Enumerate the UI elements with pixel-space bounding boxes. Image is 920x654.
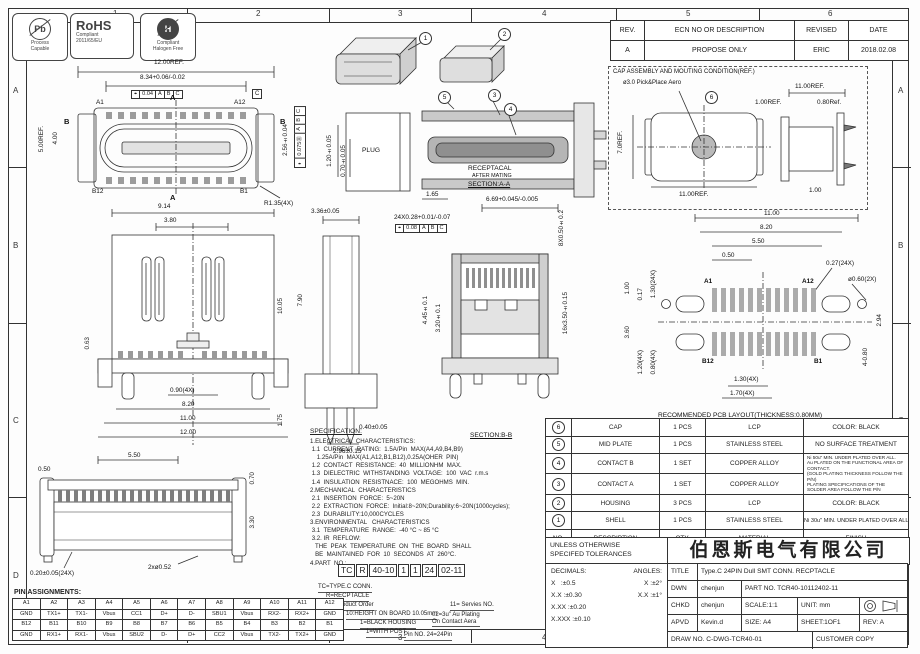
cell: C (437, 224, 447, 233)
bom-item-number: 2 (552, 497, 565, 510)
dimension-label: 8.20 (182, 401, 194, 408)
pn-label-series: 11= Servies NO. (450, 602, 494, 611)
cap-line-art (609, 67, 867, 209)
cell: 1 (410, 564, 421, 577)
dimension-label: 5.50 (752, 238, 764, 245)
customer-copy: CUSTOMER COPY (813, 632, 907, 649)
pad-label: B1 (814, 358, 822, 365)
pick-place-label: ø3.0 Pick&Place Aero (623, 80, 681, 87)
pn-label-height: 10:HEIGHT ON BOARD 10.05mm (346, 611, 437, 620)
table-cell: A1 (13, 599, 41, 610)
text-line: 1.2 CONTACT RESISTANCE: 40 MILLIONHM MAX… (310, 462, 548, 470)
section-arrow-a: A (170, 194, 175, 201)
cell: 0.075Ⓜ (294, 133, 306, 159)
angles-label: ANGLES: (633, 566, 662, 578)
dimension-label: 1.20(4X) (637, 350, 644, 375)
dimension-label: 12.00 (180, 429, 196, 436)
bom-material: COPPER ALLOY (706, 454, 804, 474)
zone-row: C (13, 416, 19, 425)
cell: 40-10 (369, 564, 397, 577)
table-row: A1A2A3A4A5A6A7A8A9A10A11A12 (13, 599, 344, 610)
table-cell: RX1+ (40, 630, 68, 641)
dimension-label: 0.70 (249, 472, 256, 484)
dimension-label: 0.80(4X) (650, 350, 657, 375)
table-cell: A11 (288, 599, 316, 610)
table-row: B12B11B10B9B8B7B6B5B4B3B2B1 (13, 620, 344, 631)
revision-header-row: REV. ECN NO OR DESCRIPTION REVISED DATE (611, 21, 909, 41)
rohs-directive: 2011/65/EU (76, 39, 133, 45)
zone-col: 5 (686, 9, 690, 18)
unless-otherwise-note: UNLESS OTHERWISE SPECIFED TOLERANCES (546, 538, 668, 564)
scale-value: SCALE:1:1 (742, 598, 798, 614)
pad-label: A12 (802, 278, 814, 285)
tol-key: X.X (638, 592, 649, 599)
dimension-label: ø0.60(2X) (848, 276, 876, 283)
table-cell: RX1- (68, 630, 96, 641)
table-cell: B8 (123, 620, 151, 631)
dimension-label: 0.63 (84, 337, 91, 349)
bom-qty: 1 PCS (660, 436, 706, 454)
dimension-label: 0.80Ref. (817, 99, 841, 106)
bom-description: SHELL (572, 512, 660, 530)
rev-header: REV. (611, 21, 645, 41)
tol-value: :±0.20 (568, 604, 586, 611)
table-cell: TX1+ (40, 609, 68, 620)
pin-label: B12 (92, 188, 103, 195)
side-line-art (275, 208, 405, 456)
text-line: 1.4 INSULATION RESISTNACE: 100 MEGOHMS M… (310, 479, 548, 487)
dimension-label: 4.45±0.1 (422, 296, 429, 324)
table-cell: SBU1 (206, 609, 234, 620)
unless-line1: UNLESS OTHERWISE (550, 541, 663, 550)
tol-value: :±0.30 (563, 592, 581, 599)
bom-item-number: 4 (552, 457, 565, 470)
cell: 0.04 (139, 90, 156, 99)
dimension-label: 3.30 (249, 516, 256, 528)
dimension-label: 1.70(4X) (730, 390, 755, 397)
tol-value: :±1° (650, 592, 662, 599)
dimension-label: 1.00 (809, 187, 821, 194)
bom-description: MID PLATE (572, 436, 660, 454)
table-cell: TX1- (68, 609, 96, 620)
table-cell: A8 (206, 599, 234, 610)
table-cell: GND (13, 609, 41, 620)
table-cell: SBU2 (123, 630, 151, 641)
bom-description: CONTACT B (572, 454, 660, 474)
pcb-line-art (600, 210, 902, 445)
bom-qty: 1 SET (660, 474, 706, 494)
dimension-label: 4.00 (52, 132, 59, 144)
text-line: 3.2. IR REFLOW: (310, 535, 548, 543)
zone-row: A (898, 86, 903, 95)
dimension-label: 0.50 (722, 252, 734, 259)
tolerance-block: DECIMALS: ANGLES: X :±0.5 X :±2° X.X :±0… (545, 563, 668, 648)
callout-5: 5 (438, 91, 451, 104)
dimension-label: 2.94 (876, 314, 883, 326)
bom-finish: Ni 30u" MIN. UNDER PLATED OVER ALL. (804, 512, 909, 530)
pn-label-housing: 1=BLACK HOUSING (360, 620, 416, 629)
dimension-label: 16x3.50±0.15 (562, 292, 569, 334)
zone-col: 4 (542, 9, 546, 18)
bom-qty: 1 PCS (660, 512, 706, 530)
front-line-art (50, 205, 300, 457)
halogen-icon: H (157, 18, 179, 40)
dimension-label: 5.50 (128, 452, 140, 459)
bom-row: 5 MID PLATE 1 PCS STAINLESS STEEL NO SUR… (546, 436, 909, 454)
cell: R (356, 564, 368, 577)
table-cell: B10 (68, 620, 96, 631)
bom-description: CAP (572, 419, 660, 437)
dimension-label: 3.80 (164, 217, 176, 224)
table-cell: 2018.02.08 (849, 41, 909, 61)
dimension-label: 3.36±0.05 (311, 208, 339, 215)
table-cell: B11 (40, 620, 68, 631)
halogen-free-text: Halogen Free (141, 47, 195, 53)
table-cell: B12 (13, 620, 41, 631)
section-aa-label: SECTION:A-A (468, 181, 510, 188)
bom-table: 6 CAP 1 PCS LCP COLOR: BLACK 5 MID PLATE… (545, 418, 909, 547)
cell: A (294, 124, 306, 134)
section-arrow-b: B (64, 118, 69, 125)
cell: ⌖ (294, 157, 306, 168)
rohs-logo: RoHS Compliant 2011/65/EU (70, 13, 134, 59)
tol-key: X (644, 580, 648, 587)
table-cell: D- (150, 630, 178, 641)
bom-material: LCP (706, 494, 804, 512)
table-cell: TX2- (261, 630, 289, 641)
view-pcb-layout: 11.00 8.20 5.50 0.50 0.27(24X) ø0.60(2X)… (600, 210, 902, 445)
zone-col: 2 (256, 9, 260, 18)
callout-3: 3 (488, 89, 501, 102)
view-section-bb: 6.69+0.045/-0.005 24X0.28+0.01/-0.07 ⌖0.… (390, 196, 580, 448)
pn-label-pins: Pin NO. 24=24Pin (404, 632, 452, 641)
table-cell: D- (178, 609, 206, 620)
specification-title: SPECIFICATION: (310, 428, 548, 436)
table-cell: A (611, 41, 645, 61)
chkd-name: chenjun (698, 598, 742, 614)
dimension-label: 1.00 (624, 282, 631, 294)
view-section-aa: 5 3 4 PLUG RECEPTACAL AFTER MATING SECTI… (330, 95, 610, 207)
table-row: GNDRX1+RX1-VbusSBU2D-D+CC2VbusTX2-TX2+GN… (13, 630, 344, 641)
dimension-label: 6.69+0.045/-0.005 (486, 196, 538, 203)
text-line: THE PEAK TEMPERATURE ON THE BOARD SHALL (310, 543, 548, 551)
feature-control-frame: ⌖0.08ABC (396, 224, 447, 233)
size-value: SIZE: A4 (742, 615, 798, 631)
bom-finish: COLOR: BLACK (804, 494, 909, 512)
receptacle-label: RECEPTACAL (468, 165, 511, 172)
table-cell: A7 (178, 599, 206, 610)
table-cell: A5 (123, 599, 151, 610)
text-line: 3.ENVIRONMENTAL CHARACTERISTICS (310, 519, 548, 527)
dimension-label: 3.60 (624, 326, 631, 338)
table-cell: B7 (150, 620, 178, 631)
dimension-label: 2.56±0.04 (282, 124, 289, 156)
table-cell: A10 (261, 599, 289, 610)
table-cell: CC2 (206, 630, 234, 641)
dimension-label: 0.70±0.05 (340, 145, 347, 177)
datum-flag: C (252, 89, 262, 99)
dwn-label: DWN (668, 581, 698, 597)
bom-row: 4 CONTACT B 1 SET COPPER ALLOY Ni 50u" M… (546, 454, 909, 474)
table-cell: RX2+ (288, 609, 316, 620)
cell: 0.08 (403, 224, 420, 233)
rev-header: ECN NO OR DESCRIPTION (645, 21, 795, 41)
company-name: 伯恩斯电气有限公司 (668, 538, 909, 564)
pn-label-post: 1=WITH POST (366, 629, 406, 638)
bom-item-number: 3 (552, 478, 565, 491)
unless-line2: SPECIFED TOLERANCES (550, 550, 663, 559)
table-cell: GND (316, 609, 344, 620)
bom-item-number: 1 (552, 514, 565, 527)
rev-value: REV: A (860, 615, 907, 631)
bom-material: LCP (706, 419, 804, 437)
pn-label-plating: 02=3u" Au Plating On Contact Aera (432, 612, 480, 627)
sheet-value: SHEET:1OF1 (798, 615, 860, 631)
table-cell: TX2+ (288, 630, 316, 641)
dimension-label: 8X0.50±0.2 (558, 210, 565, 246)
tol-key: X.XXX (551, 616, 570, 623)
zone-col: 6 (828, 9, 832, 18)
zone-row: A (13, 86, 18, 95)
dimension-label: 7.0REF. (617, 131, 624, 154)
specification-lines: 1.ELECTRICAL CHARACTERISTICS: 1.1 CURREN… (310, 438, 548, 568)
draw-number: DRAW NO. C-DWG-TCR40-01 (668, 632, 813, 649)
tol-value: :±0.10 (572, 616, 590, 623)
bom-row: 2 HOUSING 3 PCS LCP COLOR: BLACK (546, 494, 909, 512)
after-mating-label: AFTER MATING (472, 173, 512, 180)
table-cell: B2 (288, 620, 316, 631)
specification-block: SPECIFICATION: 1.ELECTRICAL CHARACTERIST… (310, 428, 548, 568)
text-line: 2.MECHANICAL CHARACTERISTICS (310, 487, 548, 495)
unit-value: UNIT: mm (798, 598, 860, 614)
table-cell: B3 (261, 620, 289, 631)
table-cell: D+ (178, 630, 206, 641)
table-cell: A2 (40, 599, 68, 610)
table-cell: A9 (233, 599, 261, 610)
table-cell: RX2- (261, 609, 289, 620)
view-isometric: 1 2 (320, 26, 520, 96)
view-side: 3.36±0.05 10.05 7.90 1.75 0.40±0.05 2.96… (275, 208, 405, 456)
text-line: 1.25A/Pin MAX(A1,A12,B1,B12),0.25A(OHER … (310, 454, 548, 462)
pin-label: A1 (96, 99, 104, 106)
dimension-label: 2xø0.52 (148, 564, 171, 571)
table-cell: A4 (95, 599, 123, 610)
pin-assignments-table: A1A2A3A4A5A6A7A8A9A10A11A12GNDTX1+TX1-Vb… (12, 598, 344, 641)
table-cell: A3 (68, 599, 96, 610)
bom-material: STAINLESS STEEL (706, 436, 804, 454)
table-cell: B6 (178, 620, 206, 631)
table-cell: B4 (233, 620, 261, 631)
dimension-label: 11.00REF. (679, 191, 708, 198)
table-row: APROPOSE ONLYERIC2018.02.08 (611, 41, 909, 61)
dimension-label: 24X0.28+0.01/-0.07 (394, 214, 450, 221)
zone-col: 3 (398, 9, 402, 18)
section-arrow-a: A (170, 94, 175, 101)
cell: 1 (398, 564, 409, 577)
pin-assignments-title: PIN ASSIGNMENTS: (14, 589, 81, 596)
pb-free-icon: Pb (29, 18, 51, 40)
bom-qty: 1 PCS (660, 419, 706, 437)
bom-row: 6 CAP 1 PCS LCP COLOR: BLACK (546, 419, 909, 437)
cell: B (294, 115, 306, 125)
dimension-label: 11.00REF. (795, 83, 824, 90)
view-front: 9.14 3.80 0.63 0.90(4X) 8.20 11.00 12.00 (50, 205, 300, 457)
tol-value: :±2° (650, 580, 662, 587)
dimension-label: 0.27(24X) (826, 260, 854, 267)
bom-qty: 3 PCS (660, 494, 706, 512)
callout-6: 6 (705, 91, 718, 104)
cap-assembly-title: CAP ASSEMBLY AND MOUTING CONDITION(REF.) (613, 69, 755, 76)
table-cell: B1 (316, 620, 344, 631)
pb-caption: Process Capable (13, 41, 67, 52)
bom-row: 1 SHELL 1 PCS STAINLESS STEEL Ni 30u" MI… (546, 512, 909, 530)
rev-header: DATE (849, 21, 909, 41)
text-line: 2.3 DURABILITY:10,000CYCLES (310, 511, 548, 519)
table-cell: B5 (206, 620, 234, 631)
dimension-label: 3.20±0.1 (435, 304, 442, 332)
table-cell: ERIC (795, 41, 849, 61)
text-line: 1.3 DIELECTRIC WITHSTANDING VOLTAGE: 100… (310, 470, 548, 478)
dwn-name: chenjun (698, 581, 742, 597)
table-cell: A6 (150, 599, 178, 610)
pin-label: B1 (240, 188, 248, 195)
tol-key: X (551, 580, 555, 587)
view-bottom: 5.50 0.50 0.70 3.30 0.20±0.05(24X) 2xø0.… (28, 452, 263, 597)
drawing-sheet: 1 2 3 4 5 6 1 2 3 4 5 6 A B C D A B C D … (0, 0, 920, 654)
view-plan: 12.00REF. 8.34+0.06/-0.02 ⌖0.04ABC C A1 … (36, 58, 316, 210)
dimension-label: 1.30(24X) (650, 270, 657, 298)
title-label: TITLE (668, 564, 698, 580)
dimension-label: 10.05 (277, 298, 284, 314)
dimension-label: 11.00 (764, 210, 780, 217)
bom-qty: 1 SET (660, 454, 706, 474)
pin-label: A12 (234, 99, 245, 106)
dimension-label: 0.20±0.05(24X) (30, 570, 74, 577)
dimension-label: 7.90 (297, 294, 304, 306)
apvd-label: APVD (668, 615, 698, 631)
process-capable-logo: Pb Process Capable (12, 13, 68, 61)
text-line: 2.2 EXTRACTION FORCE: Initial:8~20N;Dura… (310, 503, 548, 511)
bom-material: COPPER ALLOY (706, 474, 804, 494)
company-row: UNLESS OTHERWISE SPECIFED TOLERANCES 伯恩斯… (545, 537, 910, 565)
pn-label-type: TC=TYPE.C CONN. (318, 584, 372, 593)
rohs-text: RoHS (76, 18, 133, 33)
view-cap-assembly: CAP ASSEMBLY AND MOUTING CONDITION(REF.)… (608, 66, 868, 210)
bom-finish-contacts: Ni 50u" MIN. UNDER PLATED OVER ALL. Au P… (804, 454, 909, 495)
dimension-label: 1.20±0.05 (326, 135, 333, 167)
dimension-label: 1.75 (277, 414, 284, 426)
apvd-name: Kevin.d (698, 615, 742, 631)
dimension-label: 1.00REF. (755, 99, 781, 106)
cell: C (294, 106, 306, 116)
bom-item-number: 6 (552, 421, 565, 434)
bom-description: CONTACT A (572, 474, 660, 494)
table-cell: Vbus (95, 609, 123, 620)
drawing-title: Type.C 24PIN Dull SMT CONN. RECPTACLE (698, 564, 907, 580)
text-line: 3.1 TEMPERATURE RANGE: -40 °C ~ 85 °C (310, 527, 548, 535)
dimension-label: 12.00REF. (154, 59, 184, 66)
decimals-label: DECIMALS: (551, 566, 587, 578)
bom-finish: NO SURFACE TREATMENT (804, 436, 909, 454)
table-cell: GND (316, 630, 344, 641)
text-line: 2.1 INSERTION FORCE: 5~20N (310, 495, 548, 503)
third-angle-projection-icon (861, 599, 901, 613)
table-cell: B9 (95, 620, 123, 631)
table-row: GNDTX1+TX1-VbusCC1D+D-SBU1VbusRX2-RX2+GN… (13, 609, 344, 620)
callout-4: 4 (504, 103, 517, 116)
table-cell: PROPOSE ONLY (645, 41, 795, 61)
table-cell: CC1 (123, 609, 151, 620)
chkd-label: CHKD (668, 598, 698, 614)
zone-row: B (13, 241, 18, 250)
dimension-label: 8.34+0.06/-0.02 (140, 74, 185, 81)
cell: 02-11 (438, 564, 465, 577)
table-cell: A12 (316, 599, 344, 610)
table-cell: Vbus (233, 609, 261, 620)
part-number-breakdown: TCR40-10112402-11 TC=TYPE.C CONN. R=RECP… (318, 556, 553, 648)
table-cell: Vbus (233, 630, 261, 641)
plug-label: PLUG (362, 147, 380, 154)
part-number-segments: TCR40-10112402-11 (338, 564, 466, 577)
dimension-label: 0.50 (38, 466, 50, 473)
callout-2: 2 (498, 28, 511, 41)
tol-key: X.X (551, 592, 562, 599)
bom-finish: COLOR: BLACK (804, 419, 909, 437)
zone-row: D (13, 571, 19, 580)
dimension-label: 1.30(4X) (734, 376, 759, 383)
bom-description: HOUSING (572, 494, 660, 512)
section-bb-line-art (390, 196, 580, 448)
bom-item-number: 5 (552, 438, 565, 451)
title-block: TITLE Type.C 24PIN Dull SMT CONN. RECPTA… (667, 563, 908, 648)
cell: TC (338, 564, 355, 577)
text-line: 1.1 CURRENT RATING: 1.5A/Pin MAX(A4,A9,B… (310, 446, 548, 454)
feature-control-frame-vertical: ⌖0.075ⓂABC (294, 106, 306, 167)
tol-key: X.XX (551, 604, 566, 611)
tol-value: :±0.5 (561, 580, 576, 587)
dimension-label: 11.00 (180, 415, 196, 422)
dimension-label: 8.20 (760, 224, 772, 231)
revision-table: REV. ECN NO OR DESCRIPTION REVISED DATE … (610, 20, 909, 61)
dimension-label: 5.00REF. (38, 126, 45, 152)
rev-header: REVISED (795, 21, 849, 41)
bom-material: STAINLESS STEEL (706, 512, 804, 530)
dimension-label: 4-0.80 (862, 348, 869, 366)
halogen-free-logo: H Compliant Halogen Free (140, 13, 196, 61)
dimension-label: 0.17 (637, 288, 644, 300)
dimension-label: 9.14 (158, 203, 170, 210)
callout-1: 1 (419, 32, 432, 45)
dimension-label: 0.90(4X) (170, 387, 195, 394)
table-cell: D+ (150, 609, 178, 620)
text-line: 1.ELECTRICAL CHARACTERISTICS: (310, 438, 548, 446)
part-number: PART NO. TCR40-10112402-11 (742, 581, 907, 597)
pad-label: B12 (702, 358, 714, 365)
table-cell: GND (13, 630, 41, 641)
pad-label: A1 (704, 278, 712, 285)
cell: 24 (422, 564, 437, 577)
table-cell: Vbus (95, 630, 123, 641)
